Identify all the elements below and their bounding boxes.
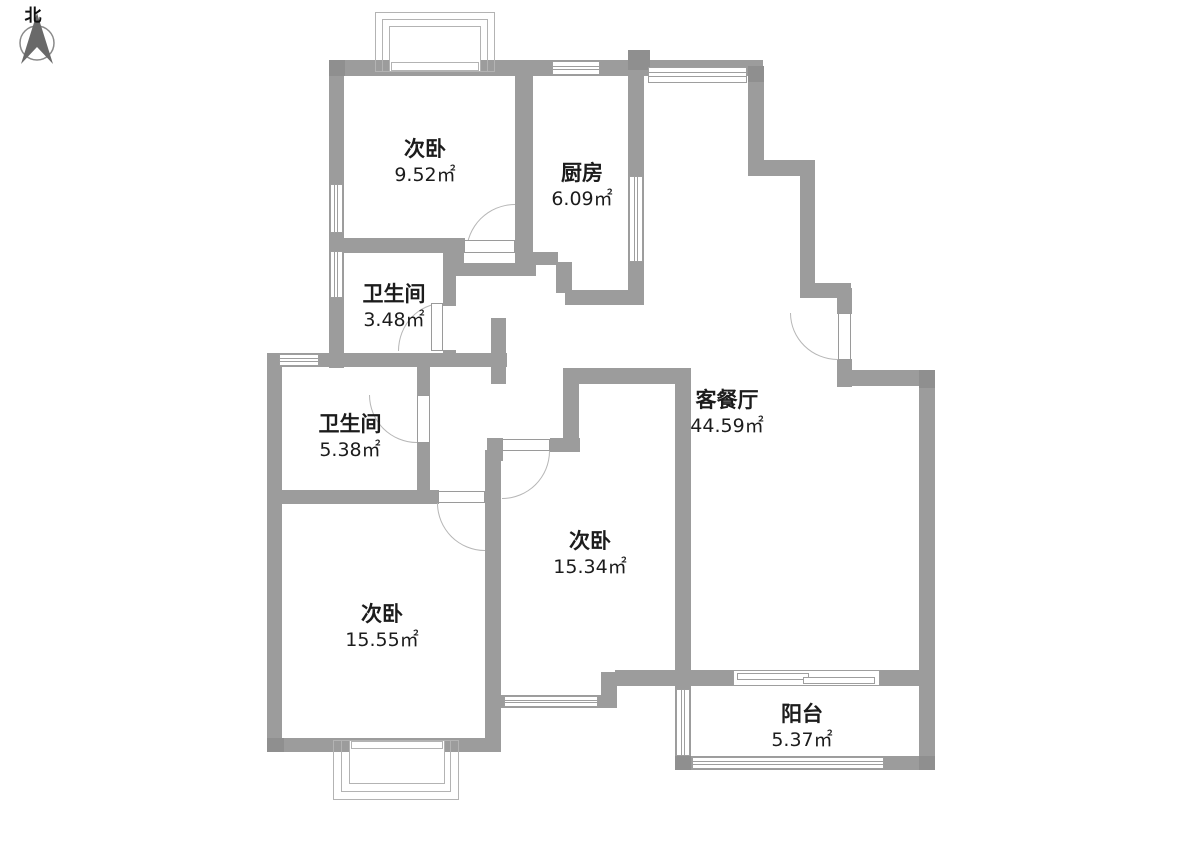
window xyxy=(676,689,690,756)
wall-corner xyxy=(919,756,935,770)
floor-plan: 北 次卧 9.52㎡ 厨房 6.09㎡ 卫生间 3.48㎡ 卫生间 5.38㎡ … xyxy=(0,0,1200,860)
room-label-living-dining: 客餐厅 44.59㎡ xyxy=(690,387,763,438)
wall xyxy=(267,353,282,752)
room-name: 厨房 xyxy=(551,160,612,186)
room-label-bedroom-middle: 次卧 15.34㎡ xyxy=(553,528,626,579)
room-area: 15.55㎡ xyxy=(345,628,418,652)
wall xyxy=(267,490,439,504)
room-label-kitchen: 厨房 6.09㎡ xyxy=(551,160,612,211)
room-area: 6.09㎡ xyxy=(551,187,612,211)
room-name: 卫生间 xyxy=(363,281,426,307)
room-label-bathroom-south: 卫生间 5.38㎡ xyxy=(319,411,382,462)
door-leaf xyxy=(417,395,430,443)
room-area: 5.38㎡ xyxy=(319,438,382,462)
room-name: 阳台 xyxy=(771,701,832,727)
door-leaf xyxy=(838,313,851,360)
room-label-balcony: 阳台 5.37㎡ xyxy=(771,701,832,752)
window xyxy=(330,251,343,298)
wall xyxy=(491,318,506,384)
wall xyxy=(800,160,815,298)
door-swing-arc xyxy=(790,313,838,360)
window xyxy=(504,696,598,707)
room-label-bedroom-north: 次卧 9.52㎡ xyxy=(394,136,455,187)
compass: 北 xyxy=(6,0,70,74)
wall xyxy=(837,288,852,314)
sliding-door-panel xyxy=(737,673,809,680)
door-leaf xyxy=(438,491,485,503)
wall-corner xyxy=(675,756,691,770)
room-name: 客餐厅 xyxy=(690,387,763,413)
room-label-bathroom-north: 卫生间 3.48㎡ xyxy=(363,281,426,332)
window xyxy=(692,757,884,769)
room-area: 15.34㎡ xyxy=(553,555,626,579)
door-leaf xyxy=(431,303,443,351)
wall xyxy=(443,240,456,306)
window xyxy=(629,176,643,262)
room-area: 9.52㎡ xyxy=(394,163,455,187)
wall xyxy=(675,383,691,673)
room-name: 次卧 xyxy=(345,601,418,627)
window xyxy=(330,184,343,233)
bay-window-frame xyxy=(351,741,443,749)
room-name: 次卧 xyxy=(394,136,455,162)
wall-corner xyxy=(628,50,650,70)
wall-corner xyxy=(748,66,764,82)
wall xyxy=(550,438,580,452)
door-swing-arc xyxy=(502,451,550,499)
sliding-door xyxy=(733,670,880,686)
wall xyxy=(919,370,935,770)
wall-corner xyxy=(919,370,935,388)
wall-corner xyxy=(329,60,345,76)
wall xyxy=(443,350,456,367)
wall xyxy=(556,262,572,293)
room-area: 3.48㎡ xyxy=(363,308,426,332)
room-label-bedroom-west: 次卧 15.55㎡ xyxy=(345,601,418,652)
wall xyxy=(533,252,558,265)
room-name: 次卧 xyxy=(553,528,626,554)
bay-window-frame xyxy=(391,62,479,71)
wall xyxy=(515,60,533,276)
wall-corner xyxy=(267,738,284,752)
wall xyxy=(615,670,691,686)
wall xyxy=(417,353,430,396)
door-leaf xyxy=(502,439,550,451)
room-name: 卫生间 xyxy=(319,411,382,437)
window xyxy=(648,67,747,83)
wall xyxy=(563,368,691,384)
compass-north-label: 北 xyxy=(15,1,51,26)
room-area: 44.59㎡ xyxy=(690,414,763,438)
door-leaf xyxy=(464,240,515,253)
room-area: 5.37㎡ xyxy=(771,728,832,752)
window xyxy=(552,61,600,75)
door-swing-arc xyxy=(437,503,485,551)
sliding-door-panel xyxy=(803,677,875,684)
window xyxy=(279,354,319,366)
